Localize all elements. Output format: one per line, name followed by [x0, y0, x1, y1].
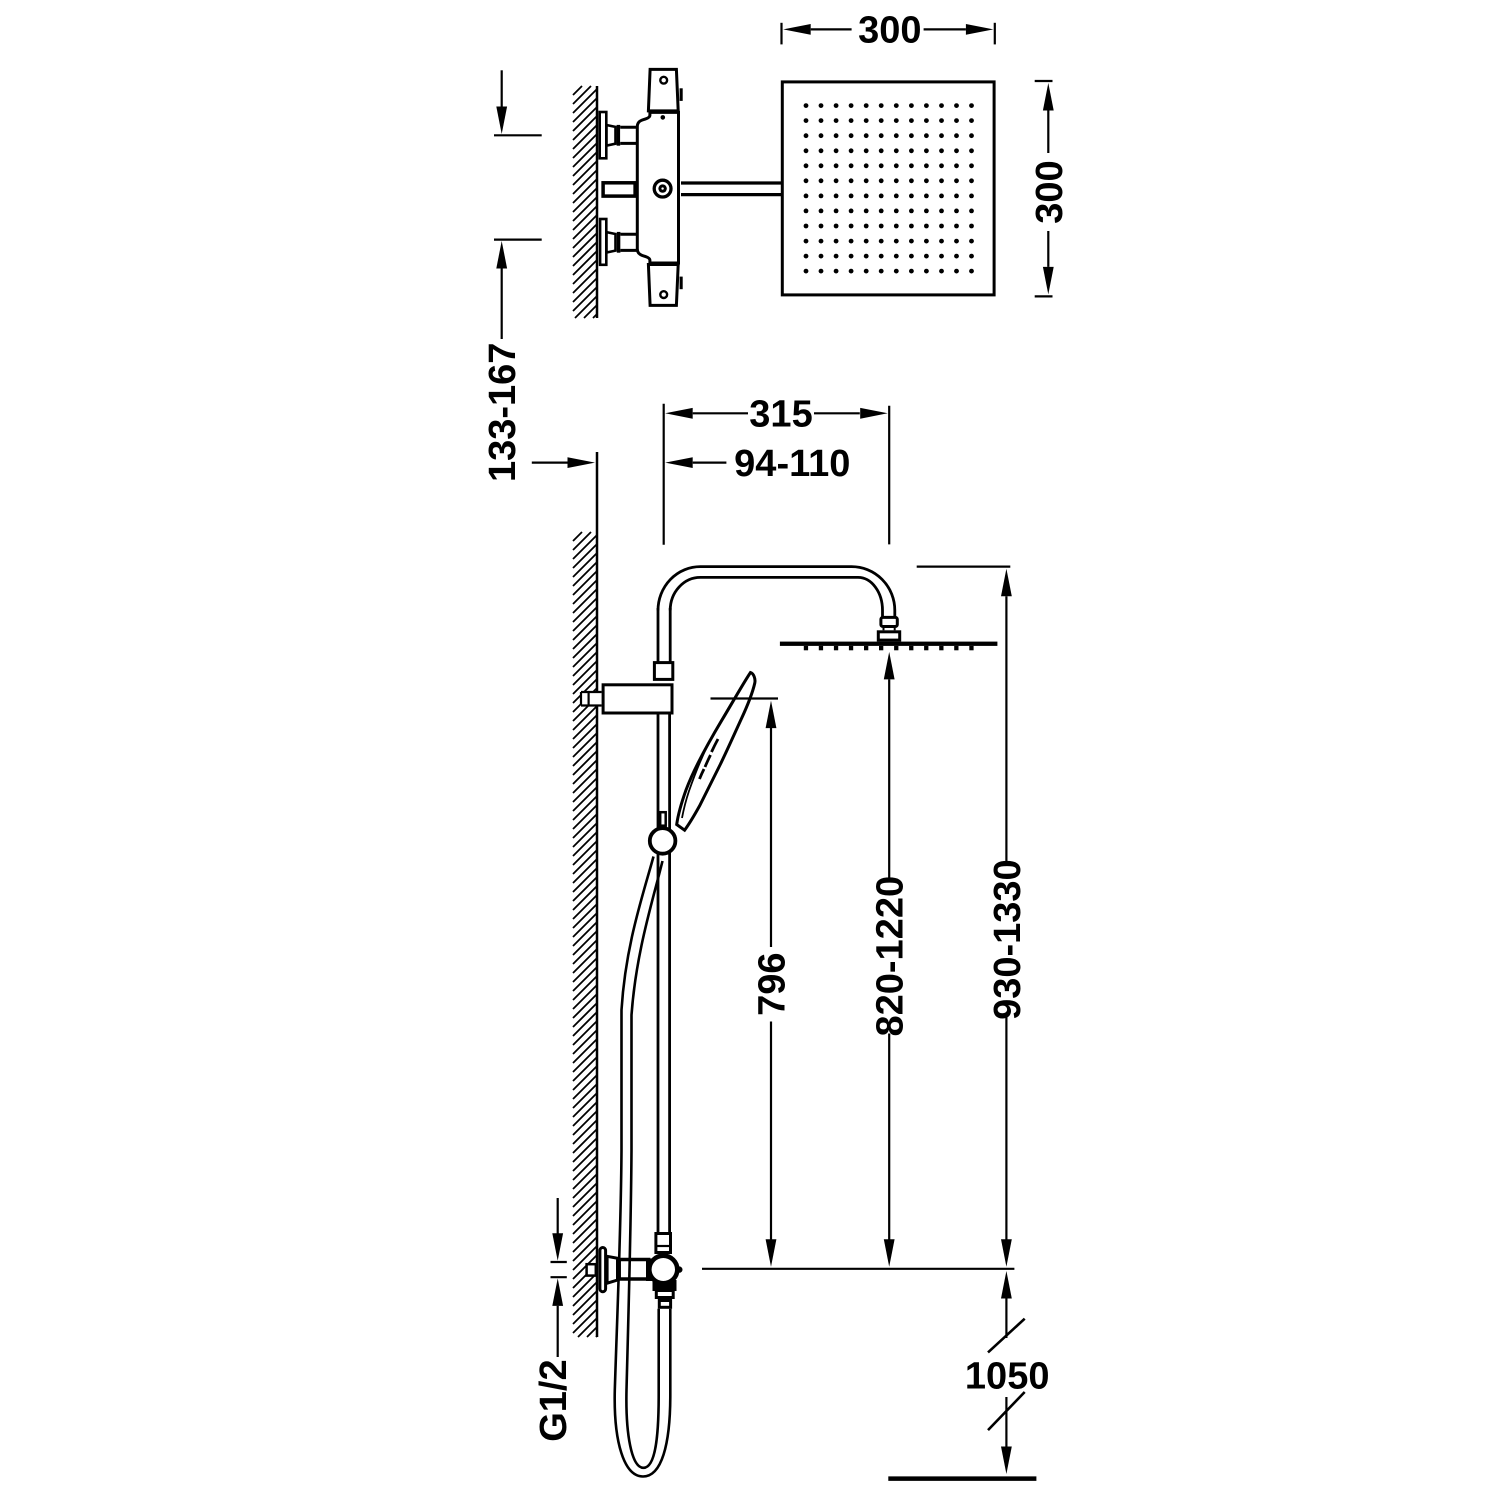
svg-text:300: 300: [1029, 160, 1071, 223]
svg-text:1050: 1050: [965, 1356, 1050, 1398]
svg-text:G1/2: G1/2: [533, 1359, 575, 1441]
svg-text:300: 300: [858, 10, 921, 52]
svg-text:796: 796: [752, 952, 794, 1015]
svg-text:94-110: 94-110: [734, 443, 850, 485]
svg-text:930-1330: 930-1330: [987, 859, 1029, 1020]
svg-text:315: 315: [749, 394, 812, 436]
svg-text:133-167: 133-167: [482, 343, 524, 482]
svg-text:820-1220: 820-1220: [870, 876, 912, 1037]
